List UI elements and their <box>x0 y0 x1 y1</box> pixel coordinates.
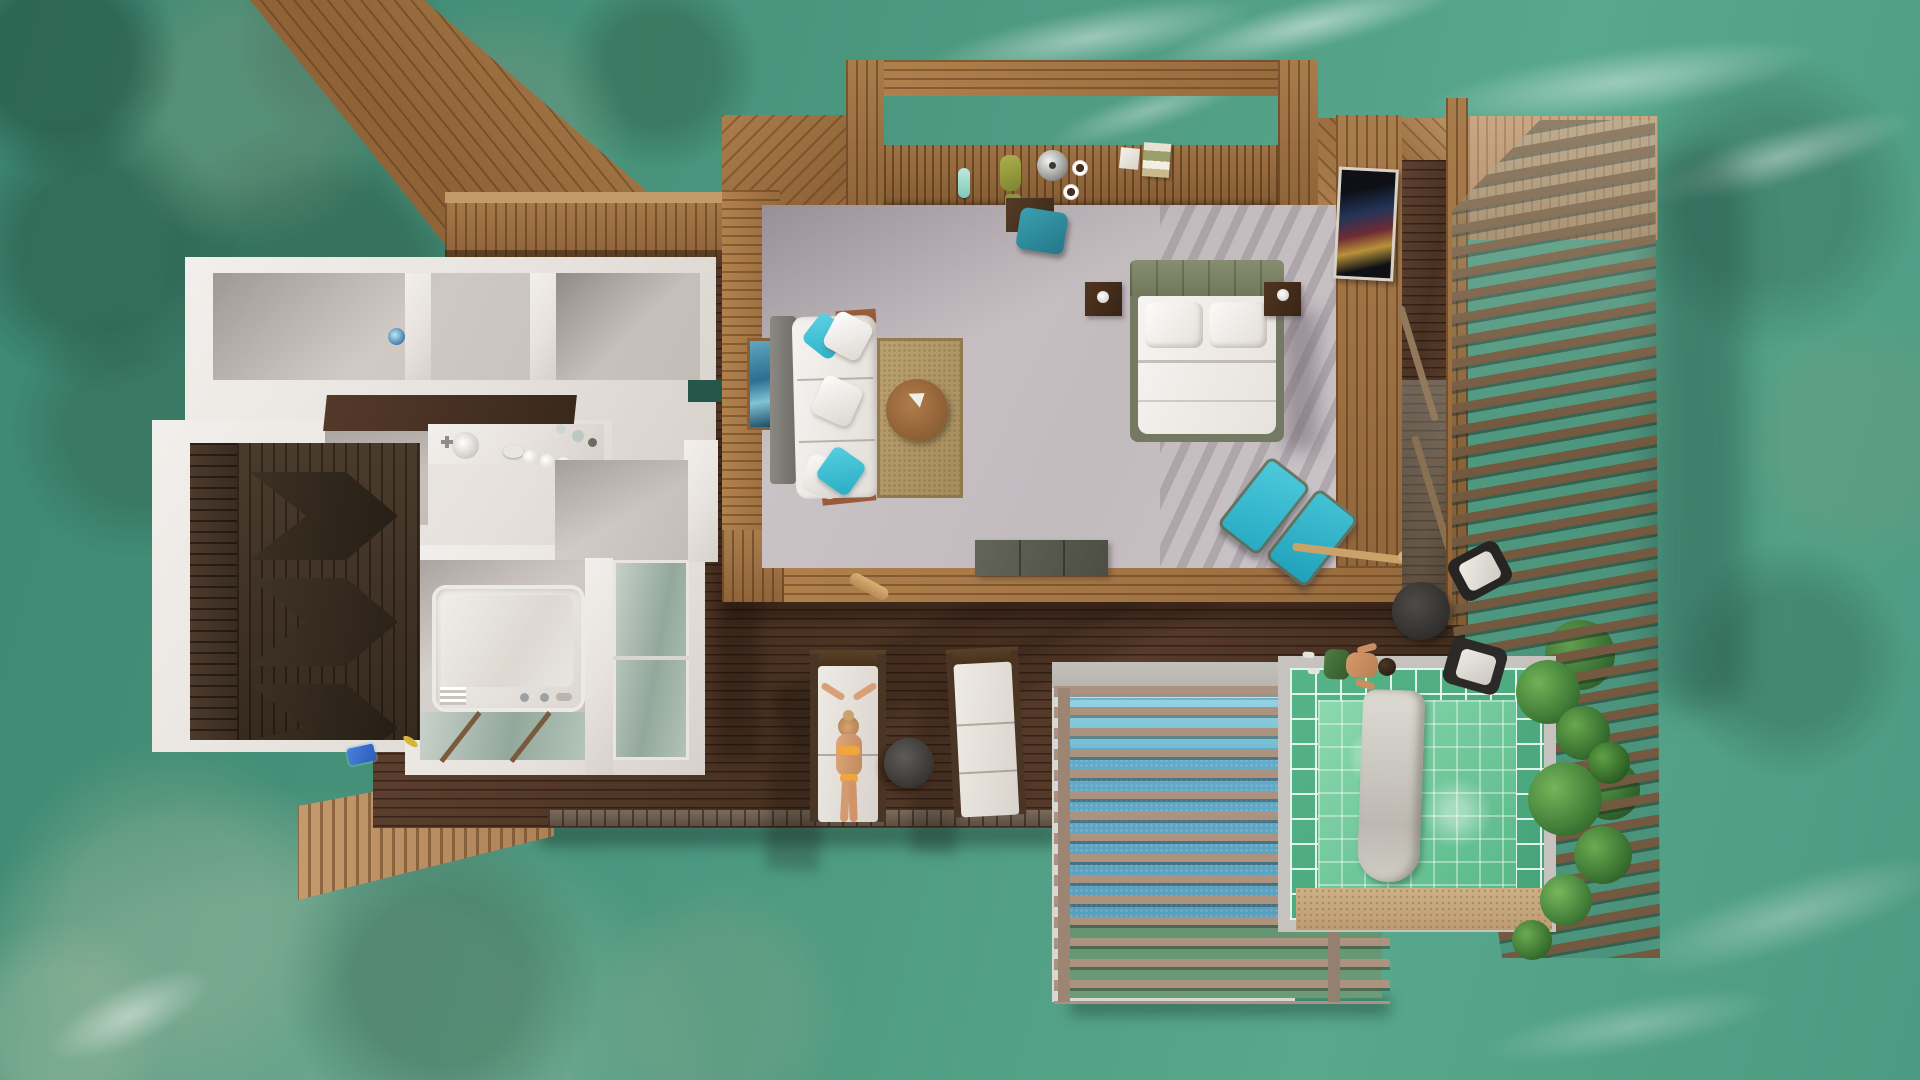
sand-strip <box>1296 888 1552 930</box>
bar-books <box>1142 142 1171 178</box>
bed-pillow <box>1145 302 1203 348</box>
bed-sheet-fold <box>1138 400 1276 402</box>
bathtub-tap-handle <box>540 693 549 702</box>
water-shadow-louver <box>1650 150 1745 710</box>
man-arm <box>1354 678 1375 691</box>
bar-coffee-cup <box>1072 160 1088 176</box>
vanity-sink <box>452 432 479 459</box>
desk-chair-teal <box>1015 207 1069 256</box>
bar-vase <box>1000 155 1021 191</box>
bar-box <box>1119 147 1140 170</box>
bed-mattress <box>1138 296 1276 434</box>
lounger-cushion <box>953 662 1019 818</box>
wall-tv <box>1333 167 1399 282</box>
pergola-beam-left <box>846 60 884 208</box>
man-flipflop <box>1302 652 1314 659</box>
sun-lounger-occupied <box>810 650 886 822</box>
bed-sheet-fold <box>1138 360 1276 363</box>
vanity-faucet <box>445 436 449 448</box>
pergola-beam-right <box>1278 60 1318 208</box>
jacuzzi-towel <box>1357 689 1426 883</box>
patio-table <box>1392 582 1450 640</box>
bench-seam <box>1063 540 1065 576</box>
bathtub-tap-handle <box>520 693 529 702</box>
sunbather-leg <box>848 780 857 822</box>
glass-floor-corridor <box>613 560 689 760</box>
bathroom-floor-connector <box>555 460 688 562</box>
plant <box>1574 826 1632 884</box>
vanity-bottles <box>556 424 566 434</box>
sunbather-torso <box>836 734 862 776</box>
room-partition <box>405 273 431 380</box>
vanity-bottles <box>572 430 584 442</box>
vanity-bottles <box>588 438 597 447</box>
closet-deck-strip <box>190 443 237 740</box>
cushion-seam <box>957 721 1015 726</box>
rolled-towels <box>523 450 537 464</box>
sofa <box>770 310 882 505</box>
shower-head <box>388 328 405 345</box>
nightstand-lamp <box>1097 291 1109 303</box>
room-partition <box>530 273 556 380</box>
bar-coffee-cup <box>1063 184 1079 200</box>
bed-headboard <box>1130 260 1284 300</box>
bed-pillow <box>1209 302 1267 348</box>
rolled-towels <box>540 454 554 468</box>
man-torso <box>1345 652 1378 679</box>
vanity-dish <box>503 445 524 458</box>
man-flipflop <box>1308 668 1320 675</box>
underwater-window <box>688 380 724 402</box>
bed-shadow <box>1284 310 1318 450</box>
sofa-seam <box>799 439 875 443</box>
walkway-edge <box>445 192 748 203</box>
bathtub-partition <box>585 558 613 775</box>
bathtub-vent <box>440 687 466 705</box>
storage-bench <box>975 540 1108 576</box>
glass-frame-strip <box>439 711 481 763</box>
bar-kettle-knob <box>1049 162 1056 169</box>
pool-slat-post <box>1058 688 1070 1002</box>
bathtub <box>432 585 585 712</box>
lounger-rail <box>878 654 886 822</box>
bench-seam <box>1019 540 1021 576</box>
walkway <box>445 192 748 258</box>
bar-bottle <box>958 168 970 198</box>
bathtub-basin <box>444 595 573 687</box>
sun-lounger-empty <box>946 646 1027 818</box>
sunbather-bikini-top <box>838 746 860 755</box>
suite-right-wall <box>684 440 718 562</box>
man-walking <box>1297 637 1404 694</box>
glass-divider <box>613 656 689 660</box>
aerial-villa-render <box>0 0 1920 1080</box>
man-head <box>1378 657 1397 676</box>
nightstand-lamp <box>1277 289 1289 301</box>
pergola-beam-top <box>846 60 1318 96</box>
plant <box>1588 742 1630 784</box>
cushion-seam <box>959 769 1017 774</box>
room-corner-shadow <box>556 273 700 380</box>
plant <box>1512 920 1552 960</box>
lounger-rail <box>810 654 818 822</box>
round-side-table <box>884 738 934 788</box>
plant <box>1540 874 1592 926</box>
bathtub-spout <box>556 693 572 701</box>
glass-frame-strip <box>509 711 551 763</box>
glass-floor-under-tub <box>420 712 585 760</box>
sunbather-hair-bun <box>843 710 854 721</box>
